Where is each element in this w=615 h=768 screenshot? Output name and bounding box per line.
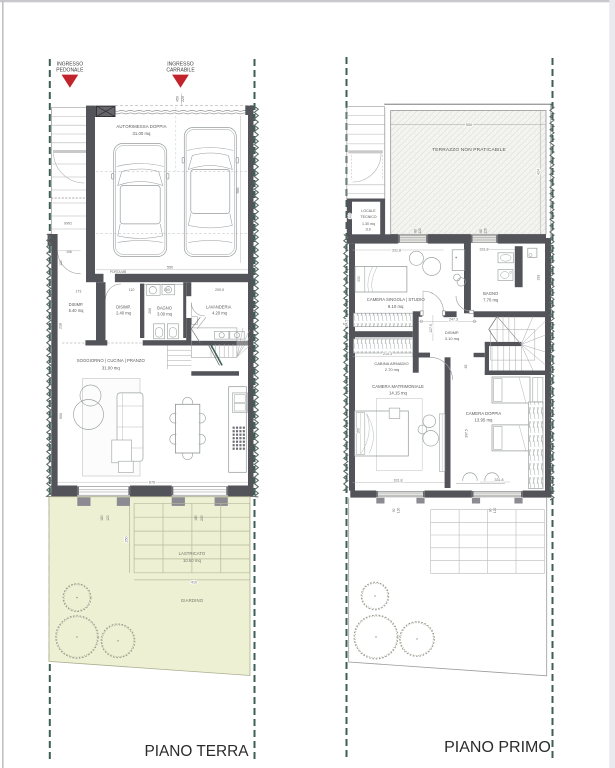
svg-text:3.00 mq: 3.00 mq — [157, 312, 173, 317]
svg-text:127.5: 127.5 — [429, 324, 433, 333]
svg-text:173: 173 — [75, 290, 81, 294]
svg-text:331.8: 331.8 — [394, 479, 403, 483]
svg-text:BAGNO: BAGNO — [483, 291, 499, 296]
svg-text:13.95 mq: 13.95 mq — [475, 417, 494, 422]
svg-text:1.30 mq: 1.30 mq — [362, 222, 375, 226]
svg-text:331.8: 331.8 — [495, 478, 504, 482]
svg-text:120: 120 — [484, 228, 488, 234]
svg-text:SOGGIORNO | CUCINA | PRANZO: SOGGIORNO | CUCINA | PRANZO — [77, 358, 146, 363]
svg-text:TECNICO: TECNICO — [360, 215, 376, 219]
svg-text:120: 120 — [493, 508, 497, 514]
svg-text:110: 110 — [129, 288, 135, 292]
svg-text:DISIMP.: DISIMP. — [445, 330, 459, 335]
svg-text:200: 200 — [148, 308, 152, 314]
svg-text:118: 118 — [365, 228, 371, 232]
svg-text:PIANO TERRA: PIANO TERRA — [144, 743, 249, 760]
svg-text:90: 90 — [392, 508, 396, 512]
svg-text:2.70 mq: 2.70 mq — [385, 367, 399, 372]
svg-text:331.8: 331.8 — [392, 248, 401, 252]
svg-text:64.5: 64.5 — [344, 320, 348, 326]
svg-text:676: 676 — [149, 481, 155, 485]
svg-text:214.3: 214.3 — [383, 352, 392, 356]
svg-text:250: 250 — [124, 537, 128, 543]
svg-text:80: 80 — [413, 229, 417, 233]
svg-text:550: 550 — [466, 123, 472, 127]
svg-text:120: 120 — [418, 228, 422, 234]
svg-text:LAVANDERIA: LAVANDERIA — [206, 305, 232, 310]
svg-text:120: 120 — [397, 508, 401, 514]
svg-text:331.8: 331.8 — [480, 248, 489, 252]
svg-text:220: 220 — [200, 515, 204, 521]
svg-text:120: 120 — [106, 515, 110, 521]
svg-text:550: 550 — [167, 266, 173, 270]
svg-text:7.70 mq: 7.70 mq — [483, 297, 499, 302]
svg-text:CAMERA DOPPIA: CAMERA DOPPIA — [466, 411, 502, 416]
svg-text:DISIMP.: DISIMP. — [116, 305, 131, 310]
svg-text:90: 90 — [489, 508, 493, 512]
svg-text:DISIMP.: DISIMP. — [69, 302, 84, 307]
svg-text:65: 65 — [464, 365, 468, 369]
svg-text:CAMERA MATRIMONIALE: CAMERA MATRIMONIALE — [372, 384, 424, 389]
svg-text:INGRESSO: INGRESSO — [167, 61, 194, 67]
svg-text:LOCALE: LOCALE — [361, 209, 376, 213]
svg-text:31.00 mq: 31.00 mq — [102, 365, 121, 370]
svg-text:PIANO PRIMO: PIANO PRIMO — [444, 739, 551, 756]
svg-text:180: 180 — [100, 515, 104, 521]
svg-text:180: 180 — [194, 515, 198, 521]
svg-text:500: 500 — [59, 413, 63, 419]
svg-text:130: 130 — [59, 260, 63, 266]
svg-text:220: 220 — [181, 96, 185, 102]
svg-text:CARRABILE: CARRABILE — [166, 68, 195, 74]
svg-text:397.5: 397.5 — [464, 429, 468, 438]
svg-text:CAMERA SINGOLA | STUDIO: CAMERA SINGOLA | STUDIO — [367, 297, 426, 302]
svg-text:218: 218 — [59, 323, 63, 329]
svg-text:110: 110 — [348, 213, 352, 218]
svg-text:233: 233 — [537, 275, 541, 281]
svg-text:PEDONALE: PEDONALE — [56, 68, 84, 74]
svg-text:90/92: 90/92 — [64, 222, 72, 226]
svg-text:150: 150 — [164, 288, 170, 292]
svg-text:PORTA MB: PORTA MB — [110, 270, 126, 274]
svg-text:410: 410 — [191, 580, 197, 584]
svg-text:205.5: 205.5 — [215, 288, 224, 292]
svg-text:14.15 mq: 14.15 mq — [389, 390, 408, 395]
svg-text:2.40 mq: 2.40 mq — [116, 311, 132, 316]
svg-text:LASTRICATO: LASTRICATO — [179, 551, 206, 556]
svg-text:3.10 mq: 3.10 mq — [445, 336, 459, 341]
svg-text:106: 106 — [66, 250, 72, 254]
svg-text:80: 80 — [479, 229, 483, 233]
svg-text:GIARDINO: GIARDINO — [181, 598, 204, 603]
svg-text:9.10 mq: 9.10 mq — [388, 304, 404, 309]
svg-text:CABINA ARMADIO: CABINA ARMADIO — [374, 361, 408, 366]
svg-text:4.20 mq: 4.20 mq — [212, 311, 228, 316]
svg-text:160: 160 — [356, 428, 360, 434]
svg-text:233: 233 — [357, 276, 361, 282]
svg-text:INGRESSO: INGRESSO — [57, 61, 84, 67]
svg-text:5.40 mq: 5.40 mq — [69, 308, 85, 313]
svg-text:AUTORIMESSA DOPPIA: AUTORIMESSA DOPPIA — [116, 124, 166, 129]
svg-text:450: 450 — [176, 96, 180, 102]
svg-text:31.00 mq: 31.00 mq — [133, 131, 152, 136]
svg-text:TERRAZZO NON PRATICABILE: TERRAZZO NON PRATICABILE — [432, 147, 506, 153]
svg-text:BAGNO: BAGNO — [157, 306, 172, 311]
svg-text:10.50 mq: 10.50 mq — [183, 558, 202, 563]
svg-text:424: 424 — [536, 169, 540, 175]
svg-text:247.3: 247.3 — [449, 317, 458, 321]
